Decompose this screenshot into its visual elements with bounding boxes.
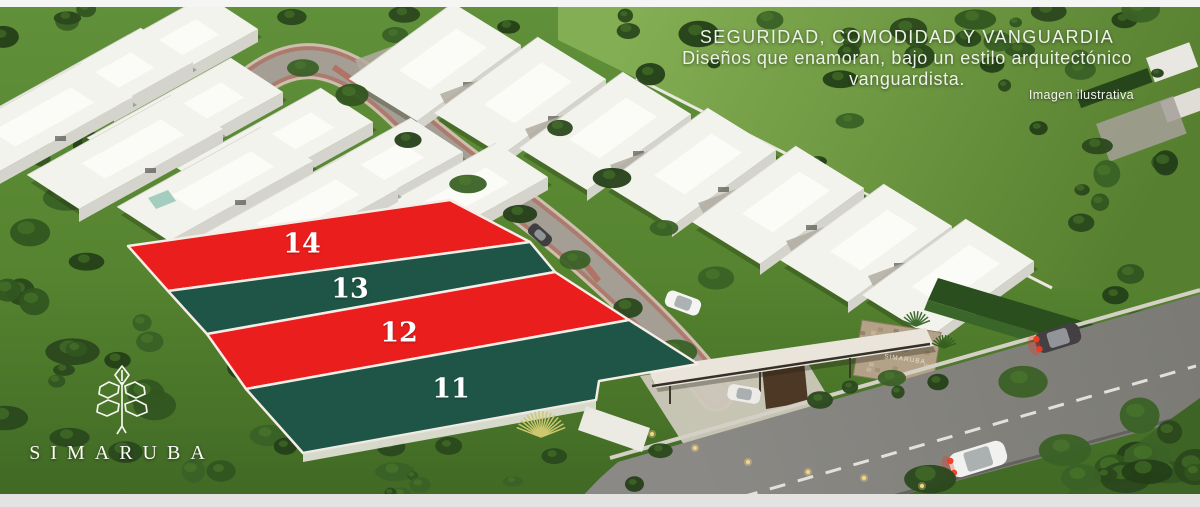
lot-label-11: 11 — [432, 374, 470, 405]
lot-label-13: 13 — [331, 274, 369, 305]
slogan-line-1: SEGURIDAD, COMODIDAD Y VANGUARDIA — [612, 27, 1200, 48]
brand-logo: SIMARUBA — [12, 364, 232, 465]
simaruba-promo-render: SEGURIDAD, COMODIDAD Y VANGUARDIA Diseño… — [0, 0, 1200, 507]
slogan-line-2: Diseños que enamoran, bajo un estilo arq… — [612, 48, 1200, 69]
brand-wordmark: SIMARUBA — [12, 442, 232, 465]
lot-label-14: 14 — [283, 229, 321, 260]
tree-logo-icon — [90, 364, 154, 436]
slogan-block: SEGURIDAD, COMODIDAD Y VANGUARDIA Diseño… — [612, 27, 1200, 91]
disclaimer-text: Imagen ilustrativa — [1029, 88, 1134, 102]
lot-label-12: 12 — [380, 318, 418, 349]
